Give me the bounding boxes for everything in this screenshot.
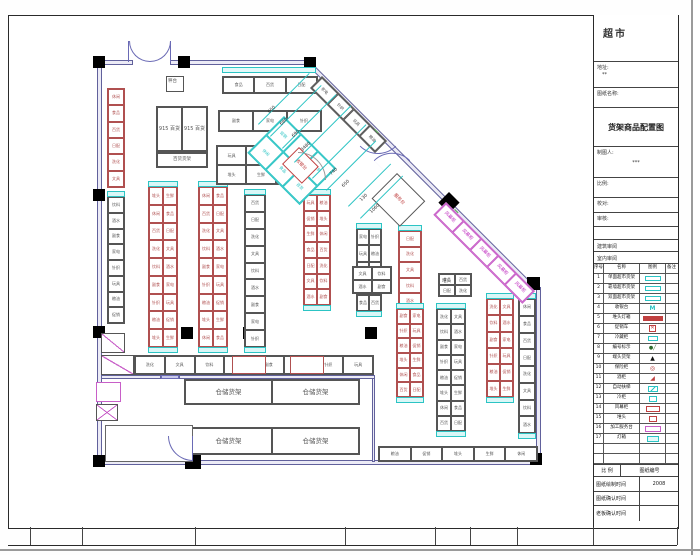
shelf-cell: 玩具 [410, 324, 423, 339]
legend-no: 10 [594, 364, 604, 373]
shelf-cell: 文具 [500, 299, 513, 315]
plan-box [96, 382, 121, 402]
shelf-cell: 休闲 [199, 329, 213, 347]
shelf-cell: 文具 [304, 274, 317, 290]
legend-name: 堆头灯箱 [604, 314, 640, 323]
shelf-cell: 仓储货架 [272, 380, 359, 404]
page-edge-right [691, 0, 693, 555]
shelf-cell: 玩具 [108, 276, 124, 292]
shelf-cell: 仓储货架 [185, 428, 272, 454]
drafter-value: *** [594, 160, 678, 166]
shelf-cell: 饮料 [399, 278, 421, 294]
legend-symbol [640, 414, 666, 423]
shelf-cell: 生鲜 [474, 447, 506, 461]
shelf-cell: 洗化 [149, 240, 163, 258]
shelf-cell: 玩具 [217, 146, 246, 165]
shelf-endcap [148, 181, 178, 187]
shelf-cell: 仓储货架 [272, 428, 359, 454]
shelf-cell: 家电 [410, 309, 423, 324]
plan-line [192, 436, 193, 461]
shelf-endcap [486, 293, 514, 299]
shelf-cell: 针织 [108, 260, 124, 276]
shelf-cell: 针织 [369, 229, 381, 245]
legend-note [666, 294, 677, 303]
boss-time-value [640, 506, 678, 521]
store-name: 超市 [603, 25, 627, 40]
margin-tick [677, 527, 678, 545]
scale-cell: 比例: [594, 178, 678, 198]
legend-note [666, 284, 677, 293]
shelf-cell: 休闲 [397, 368, 410, 383]
shelf-cell: 日配 [213, 205, 227, 223]
legend-note [666, 434, 677, 443]
legend-header-row: 序号 名称 图例 备注 [594, 264, 678, 274]
plan-label: 秤台 [168, 80, 177, 85]
shelf-grid: 洗化文具饮料酒水副食家电针织玩具粮油促销堆头生鲜 [486, 298, 514, 398]
arch-review-cell: 建筑审阅 [594, 240, 678, 252]
shelf-cell: 针织 [245, 330, 265, 347]
shelf-cell: 百货 [455, 274, 471, 285]
shelf-cell: 堆头 [199, 311, 213, 329]
wall [170, 60, 311, 65]
shelf-cell: 食品 [108, 105, 124, 121]
shelf-cell: 副食 [108, 229, 124, 245]
light-strip [161, 375, 179, 379]
shelf-cell: 家电 [357, 229, 369, 245]
legend-name: 冷柜 [604, 394, 640, 403]
shelf-cell: 食品 [213, 329, 227, 347]
legend-no: 7 [594, 334, 604, 343]
plan-box: 服务台 [372, 173, 426, 227]
shelf-grid: 休闲食品百货日配洗化文具饮料酒水 [518, 298, 536, 434]
legend-no: 14 [594, 404, 604, 413]
shelf-endcap [244, 189, 266, 195]
legend-header-symbol: 图例 [640, 264, 666, 273]
shelf-cell: 副食 [487, 332, 500, 348]
legend-note [666, 334, 677, 343]
confirm-time-value [640, 492, 678, 505]
legend-header-name: 名称 [604, 264, 640, 273]
shelf-cell: 洗化 [519, 366, 535, 383]
shelf-cell: 粮油 [397, 338, 410, 353]
legend-no: 1 [594, 274, 604, 283]
shelf-cell: 饮料 [195, 356, 225, 374]
margin-tick [195, 527, 196, 545]
column [93, 455, 105, 467]
shelf-cell: 饮料 [245, 263, 265, 280]
drawing-sheet: 休闲食品百货日配洗化文具饮料酒水副食家电针织玩具粮油促销堆头生鲜休闲食品百货日配… [0, 0, 700, 555]
legend-row [594, 454, 678, 464]
shelf-cell: 休闲 [505, 447, 537, 461]
shelf-cell: 百货货架 [157, 153, 207, 167]
shelf-cell: 休闲 [149, 205, 163, 223]
shelf-grid: 副食家电针织玩具粮油促销堆头生鲜休闲食品百货日配 [396, 308, 424, 398]
legend-row: 2靠墙超市货架 [594, 284, 678, 294]
shelf-cell: 食品 [304, 242, 317, 258]
shelf-cell: 百货 [254, 77, 285, 93]
door-arc [129, 41, 150, 62]
shelf-cell: 日配 [519, 349, 535, 366]
shelf-cell: 针织 [149, 294, 163, 312]
plan-box [232, 356, 266, 374]
shelf-cell: 促销 [304, 211, 317, 227]
shelf-cell: 日配 [399, 231, 421, 247]
plan-line [170, 41, 171, 62]
shelf-grid: 915 百货915 百货 [156, 106, 208, 152]
shelf-cell: 针织 [397, 324, 410, 339]
shelf-cell: 副食 [372, 280, 391, 293]
legend-symbol: ✕ [640, 324, 666, 333]
page-edge-bottom [0, 549, 700, 551]
shelf-cell: 休闲 [437, 401, 451, 416]
shelf-cell: 堆头 [217, 165, 246, 184]
shelf-cell: 食品 [451, 401, 465, 416]
legend-name: 双面超市货架 [604, 294, 640, 303]
shelf-cell: 粮油 [317, 195, 330, 211]
dimension-label: 740 [330, 168, 339, 177]
margin-tick [30, 527, 31, 545]
legend-symbol [640, 394, 666, 403]
drafter-label: 制图人: [597, 149, 614, 156]
legend-no: 5 [594, 314, 604, 323]
legend-no [594, 454, 604, 463]
legend-row: 4收银台M [594, 304, 678, 314]
shelf-grid: 日配洗化文具饮料酒水 [398, 230, 422, 310]
legend-symbol: ●╱ [640, 344, 666, 353]
shelf-cell: 915 百货 [157, 107, 182, 151]
shelf-cell: 饮料 [372, 267, 391, 280]
shelf-cell: 生鲜 [213, 311, 227, 329]
drawing-title-cell: 货架商品配置图 [594, 108, 678, 147]
shelf-cell: 文具 [399, 262, 421, 278]
shelf-cell: 百货 [149, 223, 163, 241]
shelf-cell: 堆头 [442, 447, 474, 461]
address-cell: 地址: ** [594, 62, 678, 88]
blank-cell [594, 227, 678, 240]
legend-header-note: 备注 [666, 264, 677, 273]
legend-name: 靠墙超市货架 [604, 284, 640, 293]
shelf-cell: 日配 [108, 138, 124, 154]
legend-row: 1单面超市货架 [594, 274, 678, 284]
audit-label: 审核: [597, 215, 609, 222]
shelf-cell: 玩具 [343, 356, 373, 374]
shelf-cell: 文具 [245, 246, 265, 263]
shelf-grid: 食品百货日配洗化 [438, 273, 472, 297]
shelf-cell: 堆头 [487, 381, 500, 397]
shelf-grid: 玩具粮油促销堆头生鲜休闲食品百货日配洗化文具饮料酒水副食 [303, 194, 331, 306]
legend-note [666, 374, 677, 383]
legend-no: 9 [594, 354, 604, 363]
wall [372, 378, 375, 462]
shelf-cell: 酒水 [451, 324, 465, 339]
shelf-cell: 百货 [397, 382, 410, 397]
shelf-cell: 日配 [304, 258, 317, 274]
legend-no: 12 [594, 384, 604, 393]
shelf-cell: 副食 [437, 340, 451, 355]
margin-tick [470, 527, 471, 545]
boss-time-label: 老板确认时间 [594, 506, 640, 521]
shelf-cell: 副食 [199, 258, 213, 276]
shelf-grid: 休闲食品百货日配洗化文具 [107, 88, 125, 188]
shelf-cell: 食品 [213, 187, 227, 205]
shelf-cell: 洗化 [199, 223, 213, 241]
legend-header-no: 序号 [594, 264, 604, 273]
shelf-cell: 促销 [410, 338, 423, 353]
legend-no: 11 [594, 374, 604, 383]
shelf-cell: 百货 [369, 295, 381, 311]
shelf-endcap [436, 303, 466, 309]
legend-row: 16加工服务台 [594, 424, 678, 434]
draw-time-row: 图纸绘制时间 2008 [594, 477, 678, 492]
legend-name: 堆头 [604, 414, 640, 423]
shelf-cell: 生鲜 [500, 381, 513, 397]
shelf-cell: 促销 [500, 364, 513, 380]
shelf-endcap [518, 433, 536, 439]
legend-row: 8编号标示●╱ [594, 344, 678, 354]
shelf-endcap [356, 311, 382, 317]
shelf-cell: 日配 [245, 212, 265, 229]
shelf-cell: 食品 [519, 316, 535, 333]
store-name-cell: 超市 [594, 15, 678, 62]
legend-no: 15 [594, 414, 604, 423]
draw-time-value: 2008 [640, 477, 678, 491]
shelf-grid: 文具饮料酒水副食 [352, 266, 392, 294]
shelf-cell: 休闲 [199, 187, 213, 205]
dimension-label: 130 [360, 194, 369, 203]
shelf-cell: 玩具 [451, 355, 465, 370]
scale-sheetno-row: 比 例 图纸编号 [594, 464, 678, 477]
legend-note [666, 414, 677, 423]
legend-row: 7冷藏柜 [594, 334, 678, 344]
shelf-endcap [356, 223, 382, 229]
legend-no: 8 [594, 344, 604, 353]
shelf-cell: 粮油 [437, 370, 451, 385]
shelf-endcap [486, 397, 514, 403]
shelf-grid: 洗化文具饮料酒水副食家电针织玩具粮油促销堆头生鲜休闲食品百货日配 [436, 308, 466, 432]
legend-symbol [640, 294, 666, 303]
shelf-grid: 仓储货架仓储货架 [184, 427, 360, 455]
shelf-cell: 酒水 [213, 240, 227, 258]
shelf-endcap [398, 225, 422, 231]
shelf-cell: 促销 [108, 307, 124, 323]
legend-name: 冷藏柜 [604, 334, 640, 343]
shelf-cell: 粮油 [108, 292, 124, 308]
legend-row: 12自动扶梯 [594, 384, 678, 394]
legend-symbol [640, 454, 666, 463]
column [181, 327, 193, 339]
shelf-cell: 促销 [451, 370, 465, 385]
column [178, 56, 190, 68]
legend-name: 自动扶梯 [604, 384, 640, 393]
shelf-cell: 日配 [439, 285, 455, 296]
shelf-endcap [244, 347, 266, 353]
legend-symbol [640, 434, 666, 443]
check-label: 校对: [597, 200, 609, 207]
footer-sheetno-label: 图纸编号 [621, 465, 678, 476]
shelf-cell: 文具 [213, 223, 227, 241]
shelf-cell: 促销 [411, 447, 443, 461]
shelf-cell: 粮油 [149, 311, 163, 329]
shelf-endcap [436, 431, 466, 437]
shelf-cell: 酒水 [353, 280, 372, 293]
shelf-cell: 副食 [317, 289, 330, 305]
shelf-cell: 堆头 [317, 211, 330, 227]
shelf-endcap [303, 305, 331, 311]
legend-symbol: ◎ [640, 364, 666, 373]
drafter-cell: 制图人: *** [594, 147, 678, 178]
shelf-cell: 百货 [245, 195, 265, 212]
shelf-cell: 饮料 [149, 258, 163, 276]
shelf-cell: 洗化 [487, 299, 500, 315]
bottom-margin-strip [8, 527, 677, 546]
legend-no: 6 [594, 324, 604, 333]
plan-box [96, 404, 118, 421]
drawing-title: 货架商品配置图 [594, 122, 678, 133]
shelf-cell: 饮料 [317, 274, 330, 290]
legend-name: 灯箱 [604, 434, 640, 443]
shelf-cell: 洗化 [317, 258, 330, 274]
legend-row: 10保险柜◎ [594, 364, 678, 374]
margin-tick [517, 527, 518, 545]
legend-row: 14风幕柜 [594, 404, 678, 414]
legend-symbol [640, 424, 666, 433]
shelf-cell: 文具 [353, 267, 372, 280]
legend-name: 单面超市货架 [604, 274, 640, 283]
shelf-endcap [198, 347, 228, 353]
interior-review-label: 室内审阅 [597, 255, 617, 262]
shelf-cell: 生鲜 [163, 187, 177, 205]
legend-no: 13 [594, 394, 604, 403]
shelf-cell: 粮油 [369, 245, 381, 261]
shelf-cell: 百货 [108, 122, 124, 138]
margin-tick [345, 527, 346, 545]
shelf-cell: 饮料 [199, 240, 213, 258]
shelf-cell: 家电 [213, 258, 227, 276]
legend-note [666, 314, 677, 323]
legend-note [666, 304, 677, 313]
sheet-name-label: 图纸名称: [597, 90, 619, 97]
legend-note [666, 384, 677, 393]
shelf-cell: 针织 [487, 348, 500, 364]
legend-row: 5堆头灯箱 [594, 314, 678, 324]
shelf-cell: 玩具 [213, 276, 227, 294]
legend-symbol: ▲ [640, 354, 666, 363]
shelf-grid: 粮油促销堆头生鲜休闲 [378, 446, 538, 462]
shelf-cell: 针织 [437, 355, 451, 370]
shelf-cell: 生鲜 [163, 329, 177, 347]
check-cell: 校对: [594, 198, 678, 213]
legend-name: 加工服务台 [604, 424, 640, 433]
shelf-cell: 休闲 [317, 226, 330, 242]
legend-symbol [640, 384, 666, 393]
margin-tick [435, 527, 436, 545]
legend-note [666, 344, 677, 353]
title-block: 超市 地址: ** 图纸名称: 货架商品配置图 制图人: *** 比例: 校对:… [593, 15, 678, 527]
sheet-name-cell: 图纸名称: [594, 88, 678, 108]
shelf-cell: 文具 [451, 309, 465, 324]
shelf-cell: 饮料 [487, 315, 500, 331]
shelf-cell: 文具 [108, 171, 124, 187]
shelf-endcap [107, 191, 125, 197]
legend-note [666, 364, 677, 373]
legend-note [666, 354, 677, 363]
column [93, 189, 105, 201]
legend-note [666, 424, 677, 433]
shelf-cell: 酒水 [163, 258, 177, 276]
light-strip [222, 67, 316, 73]
legend-name: 酒柜 [604, 374, 640, 383]
shelf-cell: 日配 [451, 416, 465, 431]
legend-symbol: ◢ [640, 374, 666, 383]
shelf-cell: 日配 [163, 223, 177, 241]
shelf-cell: 酒水 [245, 279, 265, 296]
shelf-grid: 百货日配洗化文具饮料酒水副食家电针织 [244, 194, 266, 348]
shelf-grid: 堆头生鲜休闲食品百货日配洗化文具饮料酒水副食家电针织玩具粮油促销堆头生鲜 [148, 186, 178, 348]
shelf-cell: 酒水 [500, 315, 513, 331]
shelf-cell: 915 百货 [182, 107, 207, 151]
shelf-cell: 饮料 [437, 324, 451, 339]
legend-row: 17灯箱 [594, 434, 678, 444]
legend-no: 4 [594, 304, 604, 313]
shelf-grid: 仓储货架仓储货架 [184, 379, 360, 405]
shelf-cell: 促销 [213, 294, 227, 312]
shelf-cell: 家电 [163, 276, 177, 294]
margin-tick [593, 527, 594, 545]
shelf-cell: 食品 [163, 205, 177, 223]
legend-note [666, 444, 677, 453]
shelf-cell: 副食 [149, 276, 163, 294]
shelf-cell: 日配 [410, 382, 423, 397]
shelf-cell: 食品 [223, 77, 254, 93]
column [93, 56, 105, 68]
shelf-cell: 家电 [108, 244, 124, 260]
legend-note [666, 394, 677, 403]
shelf-cell: 家电 [451, 340, 465, 355]
dimension-label: 650 [342, 180, 351, 189]
margin-tick [82, 527, 83, 545]
wall [536, 287, 541, 464]
shelf-cell: 食品 [357, 295, 369, 311]
shelf-cell: 堆头 [149, 329, 163, 347]
shelf-cell: 玩具 [500, 348, 513, 364]
boss-time-row: 老板确认时间 [594, 506, 678, 521]
column [365, 327, 377, 339]
legend-no: 2 [594, 284, 604, 293]
shelf-cell: 堆头 [397, 353, 410, 368]
legend-symbol [640, 404, 666, 413]
shelf-cell: 酒水 [304, 289, 317, 305]
legend-name: 促销车 [604, 324, 640, 333]
confirm-time-label: 图纸确认时间 [594, 492, 640, 505]
shelf-cell: 副食 [219, 111, 253, 131]
shelf-cell: 副食 [245, 296, 265, 313]
legend-note [666, 324, 677, 333]
shelf-cell: 洗化 [399, 247, 421, 263]
door-arc [150, 41, 171, 62]
shelf-cell: 饮料 [519, 400, 535, 417]
shelf-cell: 堆头 [149, 187, 163, 205]
legend-no: 17 [594, 434, 604, 443]
plan-line [128, 41, 129, 62]
shelf-grid: 百货货架 [156, 152, 208, 168]
legend-no: 3 [594, 294, 604, 303]
shelf-cell: 洗化 [437, 309, 451, 324]
shelf-cell: 酒水 [108, 213, 124, 229]
legend-name [604, 454, 640, 463]
shelf-endcap [396, 303, 424, 309]
shelf-cell: 玩具 [163, 294, 177, 312]
shelf-cell: 文具 [165, 356, 195, 374]
